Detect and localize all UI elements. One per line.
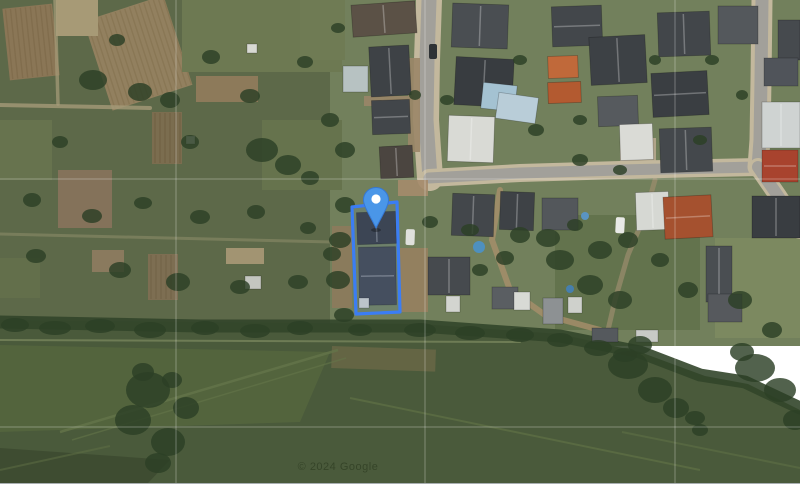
tree-canopy — [334, 308, 354, 322]
house-roof — [379, 145, 414, 179]
tree-canopy — [132, 363, 154, 381]
tree-canopy — [546, 250, 574, 270]
tree-canopy — [536, 229, 560, 247]
house-roof — [371, 99, 410, 134]
tree-canopy — [39, 321, 71, 335]
tree-canopy — [85, 319, 115, 333]
garden-pool — [581, 212, 589, 220]
tree-canopy — [422, 216, 438, 228]
tree-canopy — [608, 291, 632, 309]
tree-canopy — [323, 247, 341, 261]
tree-canopy — [230, 280, 250, 294]
tree-canopy — [240, 324, 270, 338]
tree-canopy — [409, 90, 421, 100]
parked-car — [405, 229, 415, 245]
tree-canopy — [506, 328, 534, 342]
tree-canopy — [573, 115, 587, 125]
tree-canopy — [82, 209, 102, 223]
house-roof — [447, 115, 495, 163]
tree-canopy — [109, 34, 125, 46]
tree-canopy — [736, 90, 748, 100]
tree-canopy — [730, 343, 754, 361]
tree-canopy — [23, 193, 41, 207]
field-patch — [2, 4, 59, 81]
tree-canopy — [181, 135, 199, 149]
tree-canopy — [202, 50, 220, 64]
garden-pool — [473, 241, 485, 253]
dirt-driveway — [400, 248, 428, 312]
tree-canopy — [528, 124, 544, 136]
field-patch — [56, 0, 98, 36]
tree-canopy — [692, 424, 708, 436]
tree-canopy — [335, 142, 355, 158]
tree-canopy — [584, 340, 612, 356]
house-roof — [657, 11, 711, 57]
shed-roof — [592, 328, 618, 342]
tree-canopy — [472, 264, 488, 276]
house-roof — [597, 95, 638, 126]
tree-canopy — [764, 378, 796, 402]
house-roof — [762, 102, 800, 148]
tree-canopy — [678, 282, 698, 298]
house-roof — [718, 6, 758, 44]
tree-canopy — [705, 55, 719, 65]
map-screenshot: © 2024 Google — [0, 0, 800, 500]
tree-canopy — [728, 291, 752, 309]
house-roof — [351, 1, 417, 37]
tree-canopy — [567, 219, 583, 231]
tree-canopy — [134, 197, 152, 209]
shed-roof — [247, 44, 257, 53]
shed-roof — [446, 296, 460, 312]
tree-canopy — [440, 95, 454, 105]
tree-canopy — [613, 165, 627, 175]
garden-pool — [566, 285, 574, 293]
parked-car — [615, 217, 625, 233]
tree-canopy — [246, 138, 278, 162]
house-roof — [451, 3, 509, 49]
house-roof — [499, 191, 534, 230]
tree-canopy — [191, 321, 219, 335]
tree-canopy — [109, 262, 131, 278]
tree-canopy — [166, 273, 190, 291]
satellite-map[interactable]: © 2024 Google — [0, 0, 800, 483]
tree-canopy — [513, 55, 527, 65]
house-roof — [343, 66, 368, 92]
tree-canopy — [52, 136, 68, 148]
tree-canopy — [300, 222, 316, 234]
tree-canopy — [588, 241, 612, 259]
tree-canopy — [693, 135, 707, 145]
dry-grass-streak — [331, 346, 436, 372]
tree-canopy — [247, 205, 265, 219]
tree-canopy — [288, 275, 308, 289]
field-patch — [0, 258, 40, 298]
house-roof — [778, 20, 800, 60]
tree-canopy — [162, 372, 182, 388]
tree-canopy — [160, 92, 180, 108]
tree-canopy — [404, 323, 436, 337]
tree-canopy — [663, 398, 689, 418]
tree-canopy — [287, 321, 313, 335]
tree-canopy — [240, 89, 260, 103]
tree-canopy — [1, 318, 29, 332]
tree-canopy — [685, 411, 705, 425]
tree-canopy — [577, 275, 603, 295]
tree-canopy — [190, 210, 210, 224]
house-roof — [548, 81, 582, 103]
tree-canopy — [547, 333, 573, 347]
tree-canopy — [297, 56, 313, 68]
tree-canopy — [145, 453, 171, 473]
tree-canopy — [115, 405, 151, 435]
tree-canopy — [26, 249, 46, 263]
tree-canopy — [455, 326, 485, 340]
tree-canopy — [613, 348, 637, 362]
shed-roof — [514, 292, 530, 310]
tree-canopy — [348, 324, 372, 336]
shed-roof — [543, 298, 563, 324]
tree-canopy — [173, 397, 199, 419]
tree-canopy — [618, 232, 638, 248]
tree-canopy — [321, 113, 339, 127]
tree-canopy — [301, 171, 319, 185]
parked-car — [429, 44, 437, 59]
field-patch — [152, 112, 182, 164]
tree-canopy — [762, 322, 782, 338]
tree-canopy — [649, 55, 661, 65]
tree-canopy — [326, 271, 350, 289]
house-roof — [589, 35, 647, 86]
street-right-vertical — [758, 0, 762, 167]
tree-canopy — [134, 322, 166, 338]
tree-canopy — [461, 224, 479, 236]
tree-canopy — [331, 23, 345, 33]
shed-roof — [568, 297, 582, 313]
tree-canopy — [651, 253, 669, 267]
map-bottom-whitespace — [0, 483, 800, 500]
tree-canopy — [79, 70, 107, 90]
house-roof — [762, 150, 798, 182]
tree-canopy — [572, 154, 588, 166]
tree-canopy — [638, 377, 672, 403]
house-roof — [651, 71, 709, 118]
tree-canopy — [275, 155, 301, 175]
house-roof — [369, 45, 412, 97]
house-roof — [752, 196, 800, 238]
house-roof — [764, 58, 798, 86]
house-roof — [619, 123, 653, 160]
street-vertical-main — [426, 0, 430, 178]
house-roof — [659, 127, 713, 173]
map-copyright-watermark: © 2024 Google — [298, 461, 379, 473]
house-roof — [495, 92, 538, 123]
field-patch — [226, 248, 264, 264]
tree-canopy — [329, 232, 351, 248]
shed-roof — [428, 257, 470, 295]
dirt-driveway — [398, 180, 428, 196]
house-roof — [548, 55, 579, 78]
house-roof — [663, 195, 713, 239]
tree-canopy — [128, 83, 152, 101]
pin-center-dot — [371, 194, 380, 203]
tree-canopy — [151, 428, 185, 456]
tree-canopy — [496, 251, 514, 265]
tree-canopy — [510, 227, 530, 243]
field-patch — [0, 120, 52, 180]
